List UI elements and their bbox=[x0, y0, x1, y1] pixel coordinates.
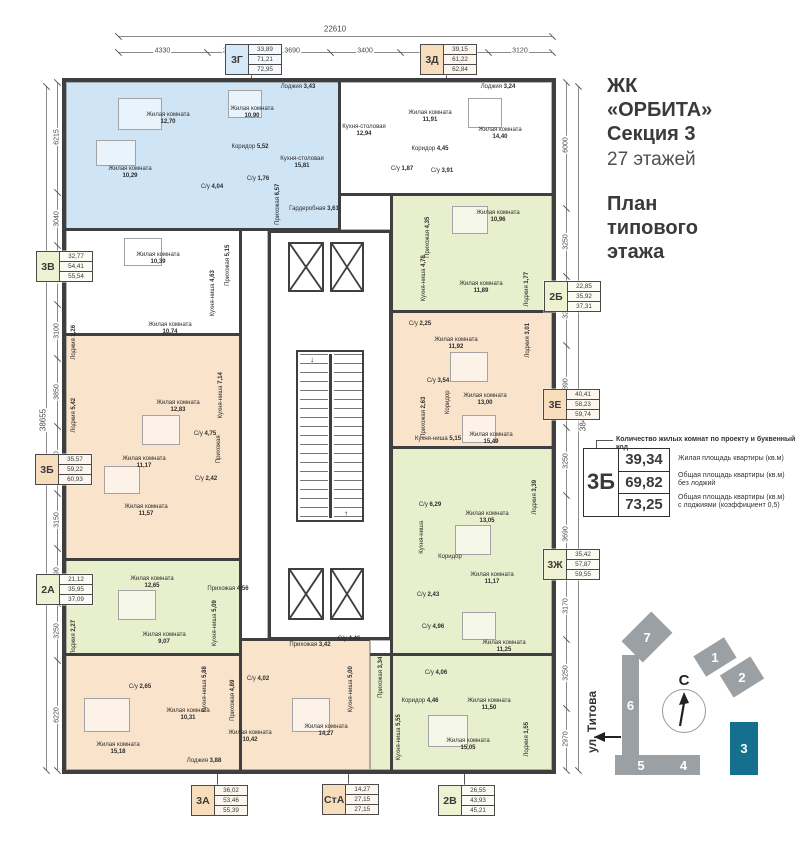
apartment-area-value: 72,95 bbox=[249, 65, 281, 74]
dimension-label: 3120 bbox=[511, 48, 529, 55]
dimension-label: 3040 bbox=[54, 210, 61, 228]
apartment-zone-corr-left[interactable] bbox=[240, 230, 268, 640]
site-building-6[interactable]: 6 bbox=[622, 655, 639, 755]
apartment-area-value: 37,09 bbox=[60, 595, 92, 604]
apartment-code: 3А bbox=[192, 786, 215, 815]
dimension-label: 3690 bbox=[283, 48, 301, 55]
north-label: С bbox=[663, 672, 705, 689]
apartment-label-3А[interactable]: 3А36,0253,4655,39 bbox=[191, 785, 248, 816]
apartment-area-value: 27,15 bbox=[346, 805, 378, 814]
dimension-label: 2970 bbox=[563, 730, 570, 748]
elevator-cross-icon bbox=[290, 570, 322, 618]
apartment-area-value: 33,89 bbox=[249, 45, 281, 55]
apartment-zone-3b[interactable] bbox=[66, 335, 240, 560]
interior-wall bbox=[66, 558, 240, 561]
apartment-code: 3В bbox=[37, 252, 60, 281]
furniture bbox=[452, 206, 488, 234]
interior-wall bbox=[392, 310, 552, 313]
project-title-line2: «ОРБИТА» bbox=[607, 98, 712, 122]
apartment-area-value: 22,85 bbox=[568, 282, 600, 292]
apartment-label-3Е[interactable]: 3Е40,4158,2359,74 bbox=[543, 389, 600, 420]
furniture bbox=[124, 238, 162, 266]
apartment-label-3Ж[interactable]: 3Ж35,4257,8759,55 bbox=[543, 549, 600, 580]
label-leader bbox=[464, 774, 465, 785]
dimension-label: 3250 bbox=[54, 623, 61, 641]
plan-title: План типового этажа bbox=[607, 192, 698, 264]
legend-desc-total: Общая площадь квартиры (кв.м) без лоджий bbox=[678, 470, 798, 492]
apartment-code: 3Г bbox=[226, 45, 249, 74]
apartment-area-value: 32,77 bbox=[60, 252, 92, 262]
dimension-label: 38655 bbox=[39, 408, 48, 432]
interior-wall bbox=[370, 653, 552, 656]
elevator-cross-icon bbox=[290, 244, 322, 290]
street-label: ул. Титова bbox=[585, 689, 599, 755]
apartment-area-value: 62,84 bbox=[444, 65, 476, 74]
dim-line bbox=[118, 36, 552, 37]
building-number: 6 bbox=[627, 698, 634, 713]
legend-box: 3Б 39,34 69,82 73,25 bbox=[583, 448, 670, 517]
dimension-label: 6215 bbox=[54, 128, 61, 146]
dimension-label: 3850 bbox=[54, 384, 61, 402]
apartment-code: 3Б bbox=[36, 455, 59, 484]
apartment-code: 3Е bbox=[544, 390, 567, 419]
project-title: ЖК «ОРБИТА» Секция 3 27 этажей bbox=[607, 74, 712, 172]
stair-rail bbox=[329, 354, 332, 518]
dimension-label: 22610 bbox=[323, 25, 347, 34]
apartment-area-value: 55,54 bbox=[60, 272, 92, 281]
dimension-label: 3400 bbox=[356, 48, 374, 55]
furniture bbox=[450, 352, 488, 382]
furniture bbox=[462, 612, 496, 640]
interior-wall bbox=[340, 193, 552, 196]
plan-title-line1: План bbox=[607, 192, 698, 216]
apartment-label-2Б[interactable]: 2Б22,8535,9237,31 bbox=[544, 281, 601, 312]
legend-leader-line bbox=[596, 440, 597, 448]
furniture bbox=[118, 98, 162, 130]
building-number: 4 bbox=[680, 758, 687, 773]
dimension-label: 4330 bbox=[154, 48, 172, 55]
furniture bbox=[428, 715, 468, 747]
apartment-area-value: 53,46 bbox=[215, 796, 247, 806]
apartment-area-value: 14,27 bbox=[346, 785, 378, 795]
apartment-area-value: 43,93 bbox=[462, 796, 494, 806]
elevator-shaft-4 bbox=[330, 568, 364, 620]
apartment-area-value: 27,15 bbox=[346, 795, 378, 805]
apartment-area-value: 37,31 bbox=[568, 302, 600, 311]
apartment-zone-2v[interactable] bbox=[370, 655, 552, 770]
apartment-code: СтА bbox=[323, 785, 346, 814]
apartment-label-2А[interactable]: 2А21,1235,9537,09 bbox=[36, 574, 93, 605]
legend-value-living: 39,34 bbox=[619, 449, 669, 472]
legend-value-total-loggia: 73,25 bbox=[619, 494, 669, 516]
apartment-area-value: 36,02 bbox=[215, 786, 247, 796]
apartment-code: 3Ж bbox=[544, 550, 567, 579]
apartment-area-value: 61,22 bbox=[444, 55, 476, 65]
apartment-zone-3d[interactable] bbox=[340, 82, 552, 195]
plan-title-line2: типового bbox=[607, 216, 698, 240]
apartment-zone-corr-top[interactable] bbox=[340, 195, 392, 230]
building-number: 2 bbox=[738, 670, 745, 685]
furniture bbox=[468, 98, 502, 128]
building-number: 1 bbox=[711, 650, 718, 665]
apartment-area-value: 59,22 bbox=[59, 465, 91, 475]
apartment-area-value: 60,93 bbox=[59, 475, 91, 484]
furniture bbox=[455, 525, 491, 555]
north-arrow-icon bbox=[663, 690, 705, 732]
project-title-line3: Секция 3 bbox=[607, 122, 712, 146]
apartment-label-СтА[interactable]: СтА14,2727,1527,15 bbox=[322, 784, 379, 815]
project-title-line1: ЖК bbox=[607, 74, 712, 98]
apartment-area-value: 39,15 bbox=[444, 45, 476, 55]
apartment-area-value: 45,21 bbox=[462, 806, 494, 815]
legend-desc-total-loggia: Общая площадь квартиры (кв.м) с лоджиями… bbox=[678, 491, 798, 513]
apartment-label-3Г[interactable]: 3Г33,8971,2172,95 bbox=[225, 44, 282, 75]
apartment-label-2В[interactable]: 2В26,5543,9345,21 bbox=[438, 785, 495, 816]
floors-label: 27 этажей bbox=[607, 148, 712, 172]
interior-wall bbox=[338, 82, 341, 231]
furniture bbox=[292, 698, 330, 732]
dimension-label: 3250 bbox=[563, 452, 570, 470]
plan-title-line3: этажа bbox=[607, 240, 698, 264]
apartment-code: 3Д bbox=[421, 45, 444, 74]
dimension-label: 3100 bbox=[54, 322, 61, 340]
building-number: 3 bbox=[740, 741, 747, 756]
site-plan: С ул. Титова 1234567 bbox=[585, 590, 800, 795]
furniture bbox=[96, 140, 136, 166]
apartment-area-value: 40,41 bbox=[567, 390, 599, 400]
elevator-cross-icon bbox=[332, 244, 362, 290]
dimension-label: 3690 bbox=[563, 525, 570, 543]
apartment-label-3Д[interactable]: 3Д39,1561,2262,84 bbox=[420, 44, 477, 75]
interior-wall bbox=[392, 446, 552, 449]
street-arrow-icon bbox=[593, 730, 623, 744]
site-building-5[interactable]: 5 bbox=[615, 755, 667, 775]
stair-flight-up bbox=[334, 354, 362, 518]
building-number: 5 bbox=[637, 758, 644, 773]
legend-leader-line bbox=[596, 440, 613, 441]
furniture bbox=[118, 590, 156, 620]
page: ЖК «ОРБИТА» Секция 3 27 этажей План типо… bbox=[0, 0, 800, 843]
furniture bbox=[462, 415, 496, 443]
legend: Количество жилых комнат по проекту и бук… bbox=[583, 430, 798, 520]
dimension-label: 3150 bbox=[54, 512, 61, 530]
furniture bbox=[142, 415, 180, 445]
apartment-area-value: 26,55 bbox=[462, 786, 494, 796]
apartment-area-value: 59,55 bbox=[567, 570, 599, 579]
legend-desc-living: Жилая площадь квартиры (кв.м) bbox=[678, 448, 798, 470]
furniture bbox=[228, 90, 262, 118]
apartment-code: 2Б bbox=[545, 282, 568, 311]
building-number: 7 bbox=[643, 630, 650, 645]
apartment-code: 2В bbox=[439, 786, 462, 815]
site-building-4[interactable]: 4 bbox=[667, 755, 700, 775]
apartment-area-value: 71,21 bbox=[249, 55, 281, 65]
apartment-area-value: 21,12 bbox=[60, 575, 92, 585]
elevator-cross-icon bbox=[332, 570, 362, 618]
label-leader bbox=[217, 774, 218, 785]
label-leader bbox=[348, 774, 349, 784]
legend-value-total: 69,82 bbox=[619, 472, 669, 495]
apartment-area-value: 35,95 bbox=[60, 585, 92, 595]
dimension-label: 3250 bbox=[563, 233, 570, 251]
staircase: ↓↑ bbox=[296, 350, 364, 522]
apartment-area-value: 59,74 bbox=[567, 410, 599, 419]
elevator-shaft-3 bbox=[288, 568, 324, 620]
apartment-area-value: 35,57 bbox=[59, 455, 91, 465]
elevator-shaft-2 bbox=[330, 242, 364, 292]
apartment-area-value: 58,23 bbox=[567, 400, 599, 410]
apartment-code: 2А bbox=[37, 575, 60, 604]
interior-wall bbox=[66, 653, 240, 656]
compass: С bbox=[662, 689, 706, 733]
apartment-area-value: 54,41 bbox=[60, 262, 92, 272]
apartment-label-3Б[interactable]: 3Б35,5759,2260,93 bbox=[35, 454, 92, 485]
apartment-area-value: 35,42 bbox=[567, 550, 599, 560]
dimension-label: 3250 bbox=[563, 665, 570, 683]
stair-down-arrow-icon: ↓ bbox=[310, 356, 314, 364]
elevator-shaft-1 bbox=[288, 242, 324, 292]
dimension-label: 6000 bbox=[563, 136, 570, 154]
furniture bbox=[104, 466, 140, 494]
interior-wall bbox=[66, 333, 240, 336]
dimension-label: 3170 bbox=[563, 597, 570, 615]
apartment-area-value: 35,92 bbox=[568, 292, 600, 302]
apartment-label-3В[interactable]: 3В32,7754,4155,54 bbox=[36, 251, 93, 282]
furniture bbox=[84, 698, 130, 732]
legend-apartment-code: 3Б bbox=[584, 449, 619, 516]
interior-wall bbox=[239, 230, 242, 770]
apartment-area-value: 57,87 bbox=[567, 560, 599, 570]
stair-flight-down bbox=[300, 354, 328, 518]
stair-up-arrow-icon: ↑ bbox=[344, 510, 348, 518]
dimension-label: 6220 bbox=[54, 706, 61, 724]
apartment-area-value: 55,39 bbox=[215, 806, 247, 815]
site-building-3[interactable]: 3 bbox=[730, 722, 758, 775]
